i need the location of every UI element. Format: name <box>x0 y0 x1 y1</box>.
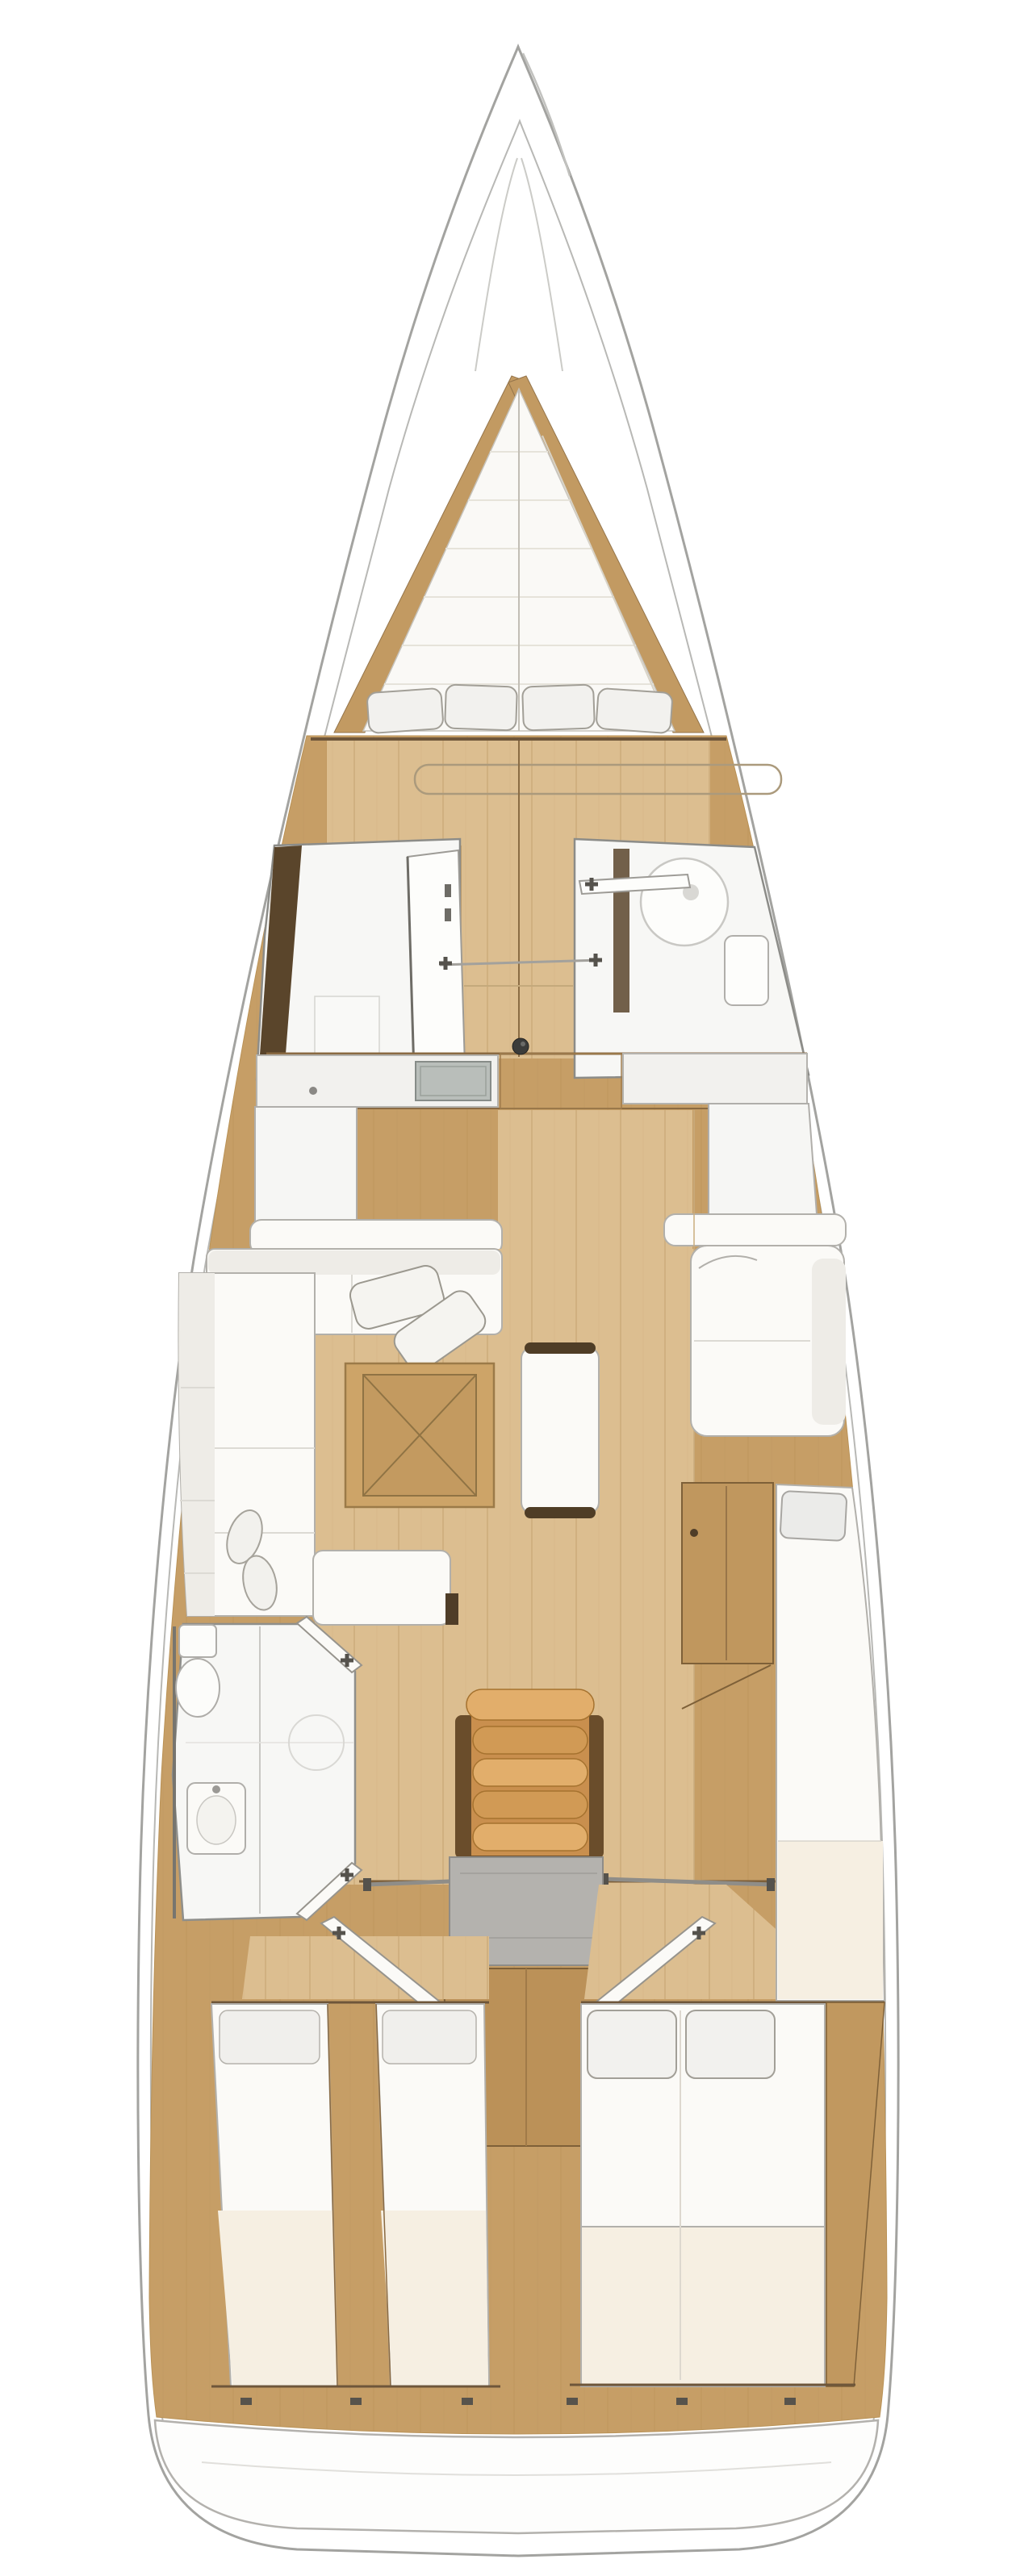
vberth-pillow <box>366 688 443 733</box>
sofa-top-back <box>208 1250 500 1275</box>
sofa-aft-seat <box>313 1551 450 1625</box>
yacht-deck-plan <box>0 0 1033 2576</box>
step-tread <box>473 1791 588 1818</box>
forward-head-port <box>257 839 465 1079</box>
sofa-starboard <box>691 1246 846 1436</box>
bed-pillow <box>686 2010 775 2078</box>
berth-pillow <box>220 2010 320 2064</box>
step-tread <box>473 1726 588 1754</box>
wardrobe <box>682 1483 773 1664</box>
twin-berth-inboard-cream <box>381 2211 488 2385</box>
galley-sink <box>416 1062 491 1100</box>
head-door <box>408 850 465 1073</box>
toilet <box>725 936 768 1005</box>
counter-edge-bar <box>664 1214 846 1246</box>
saloon-table <box>345 1363 494 1507</box>
toilet-bowl <box>176 1659 220 1717</box>
bench-cap <box>525 1507 596 1518</box>
galley-counter <box>709 1104 817 1216</box>
stern-platform <box>155 2420 878 2533</box>
door-knob <box>512 1038 529 1054</box>
door-hinge <box>445 908 451 921</box>
vberth-pillow <box>445 684 517 730</box>
rail-fitting <box>363 1878 371 1891</box>
transom-fitting <box>462 2398 473 2405</box>
transom-fitting <box>784 2398 796 2405</box>
rail-fitting <box>767 1878 775 1891</box>
toilet-tank <box>179 1625 216 1657</box>
door-hinge <box>445 884 451 897</box>
door-knob-highlight <box>521 1042 525 1046</box>
berth-cream-section <box>778 1841 883 1999</box>
bed-pillow <box>588 2010 676 2078</box>
twin-berth-outboard-cream <box>218 2211 337 2385</box>
aft-seat-bracket <box>445 1593 458 1625</box>
floorplan-canvas <box>0 0 1033 2576</box>
step-tread <box>473 1759 588 1786</box>
berth-pillow <box>383 2010 476 2064</box>
step-tread <box>466 1689 594 1720</box>
galley-aisle-floor <box>498 1110 692 1250</box>
wardrobe-strip <box>613 849 629 1012</box>
vanity-outline <box>315 996 379 1057</box>
step-tread <box>473 1823 588 1851</box>
settee-back <box>812 1259 846 1425</box>
wardrobe-handle <box>690 1529 698 1537</box>
shower-basin <box>641 858 728 946</box>
vberth-pillow <box>522 684 595 730</box>
bench-cushion <box>521 1347 599 1513</box>
double-bed-lower <box>581 2227 825 2386</box>
transom-fitting <box>676 2398 688 2405</box>
shelf-starboard <box>623 1054 807 1104</box>
galley-counter <box>255 1107 357 1224</box>
transom-fitting <box>350 2398 362 2405</box>
center-bench <box>521 1342 599 1518</box>
transom-fitting <box>240 2398 252 2405</box>
aft-head-port <box>173 1617 362 1920</box>
faucet <box>212 1785 220 1793</box>
vberth-pillow <box>596 688 672 733</box>
counter-knob <box>309 1087 317 1095</box>
bench-cap <box>525 1342 596 1354</box>
transom-fitting <box>567 2398 578 2405</box>
berth-pillow <box>780 1491 847 1541</box>
basin-bowl <box>197 1796 236 1844</box>
